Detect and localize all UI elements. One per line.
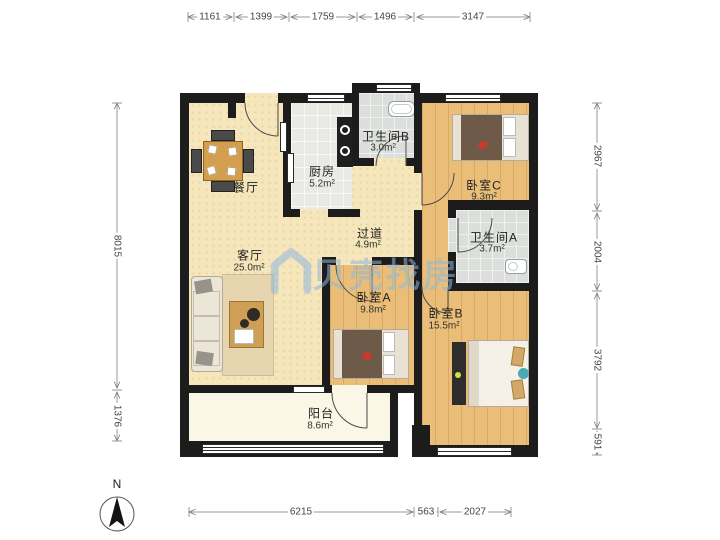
dim-right-2: 2004 bbox=[592, 239, 603, 265]
room-label-living: 客厅 bbox=[237, 247, 263, 264]
pillow bbox=[511, 379, 526, 399]
plate-icon bbox=[227, 146, 237, 156]
kitchen-door-opening bbox=[300, 209, 328, 217]
room-area-bed-b: 15.5m² bbox=[428, 321, 459, 332]
window-line bbox=[438, 451, 511, 452]
balcony-floor bbox=[189, 393, 390, 441]
teapot-icon bbox=[247, 308, 260, 321]
wall bbox=[180, 93, 189, 457]
bathroom-b-window bbox=[376, 84, 412, 92]
room-area-bed-c: 9.3m² bbox=[471, 192, 497, 203]
wall bbox=[414, 102, 422, 173]
dim-top-2: 1399 bbox=[248, 12, 274, 23]
wall bbox=[228, 102, 236, 118]
tray-icon bbox=[234, 329, 254, 344]
burner-icon bbox=[340, 146, 350, 156]
balcony-slider-frame bbox=[293, 386, 325, 393]
cup-icon bbox=[240, 319, 249, 328]
wall bbox=[352, 93, 359, 166]
dim-top-4: 1496 bbox=[372, 12, 398, 23]
dim-right-3: 3792 bbox=[592, 347, 603, 373]
window-line bbox=[203, 447, 383, 448]
room-label-bed-b: 卧室B bbox=[428, 305, 463, 322]
dim-right-4: 591 bbox=[592, 432, 603, 453]
plate-icon bbox=[227, 167, 237, 177]
watermark-text: 贝壳找房 bbox=[312, 248, 460, 297]
pillow bbox=[383, 332, 395, 352]
dim-bottom-3: 2027 bbox=[462, 507, 488, 518]
entry-door-opening bbox=[245, 93, 278, 103]
stool-icon bbox=[518, 368, 529, 379]
plate-icon bbox=[207, 144, 218, 155]
sofa-cushion bbox=[193, 291, 220, 316]
cabinet-dot bbox=[455, 372, 461, 378]
balcony-window bbox=[202, 444, 384, 454]
wall bbox=[414, 291, 422, 445]
dining-chair-top bbox=[211, 130, 235, 141]
bed-b-fold bbox=[469, 341, 479, 406]
window-line bbox=[446, 98, 500, 99]
dining-chair-right bbox=[243, 149, 254, 173]
bed-c-blanket bbox=[461, 115, 502, 160]
dim-top-3: 1759 bbox=[310, 12, 336, 23]
room-area-kitchen: 5.2m² bbox=[309, 179, 335, 190]
room-label-balcony: 阳台 bbox=[308, 405, 334, 422]
room-area-bed-a: 9.8m² bbox=[360, 305, 386, 316]
bathtub-inner bbox=[391, 104, 412, 114]
balcony-door-opening bbox=[332, 385, 367, 393]
room-area-balcony: 8.6m² bbox=[307, 421, 333, 432]
room-area-living: 25.0m² bbox=[233, 263, 264, 274]
wall bbox=[390, 388, 398, 457]
kitchen-window bbox=[307, 94, 345, 102]
room-area-bath-b: 3.0m² bbox=[370, 143, 396, 154]
bedroom-c-window bbox=[445, 94, 501, 102]
dim-bottom-2: 563 bbox=[416, 507, 437, 518]
throw-pillow bbox=[195, 351, 214, 366]
dining-chair-bottom bbox=[211, 181, 235, 192]
bathroom-b-door-opening bbox=[374, 158, 406, 166]
watermark: 贝壳找房 bbox=[268, 242, 568, 302]
pillow bbox=[503, 138, 516, 157]
beike-logo-icon bbox=[268, 244, 314, 296]
dim-top-5: 3147 bbox=[460, 12, 486, 23]
compass-north-label: N bbox=[113, 477, 122, 491]
dining-chair-left bbox=[191, 149, 202, 173]
dim-top-1: 1161 bbox=[197, 12, 223, 23]
window-line bbox=[308, 98, 344, 99]
dim-left-2: 1376 bbox=[112, 403, 123, 429]
dim-bottom-1: 6215 bbox=[288, 507, 314, 518]
kitchen-sliding-door bbox=[287, 153, 294, 183]
pillow bbox=[383, 355, 395, 375]
kitchen-sliding-door bbox=[280, 122, 287, 152]
burner-icon bbox=[340, 125, 350, 135]
window-line bbox=[377, 88, 411, 89]
room-label-dining: 餐厅 bbox=[233, 179, 259, 196]
dim-left-1: 8015 bbox=[112, 233, 123, 259]
room-label-kitchen: 厨房 bbox=[309, 163, 335, 180]
sofa-cushion bbox=[193, 316, 220, 341]
dim-right-1: 2967 bbox=[592, 143, 603, 169]
bedroom-b-window bbox=[437, 447, 512, 456]
floor-plan-canvas: 餐厅 厨房 5.2m² 卫生间B 3.0m² 卧室C 9.3m² 过道 4.9m… bbox=[0, 0, 720, 540]
window-line bbox=[203, 450, 383, 451]
pillow bbox=[503, 117, 516, 136]
